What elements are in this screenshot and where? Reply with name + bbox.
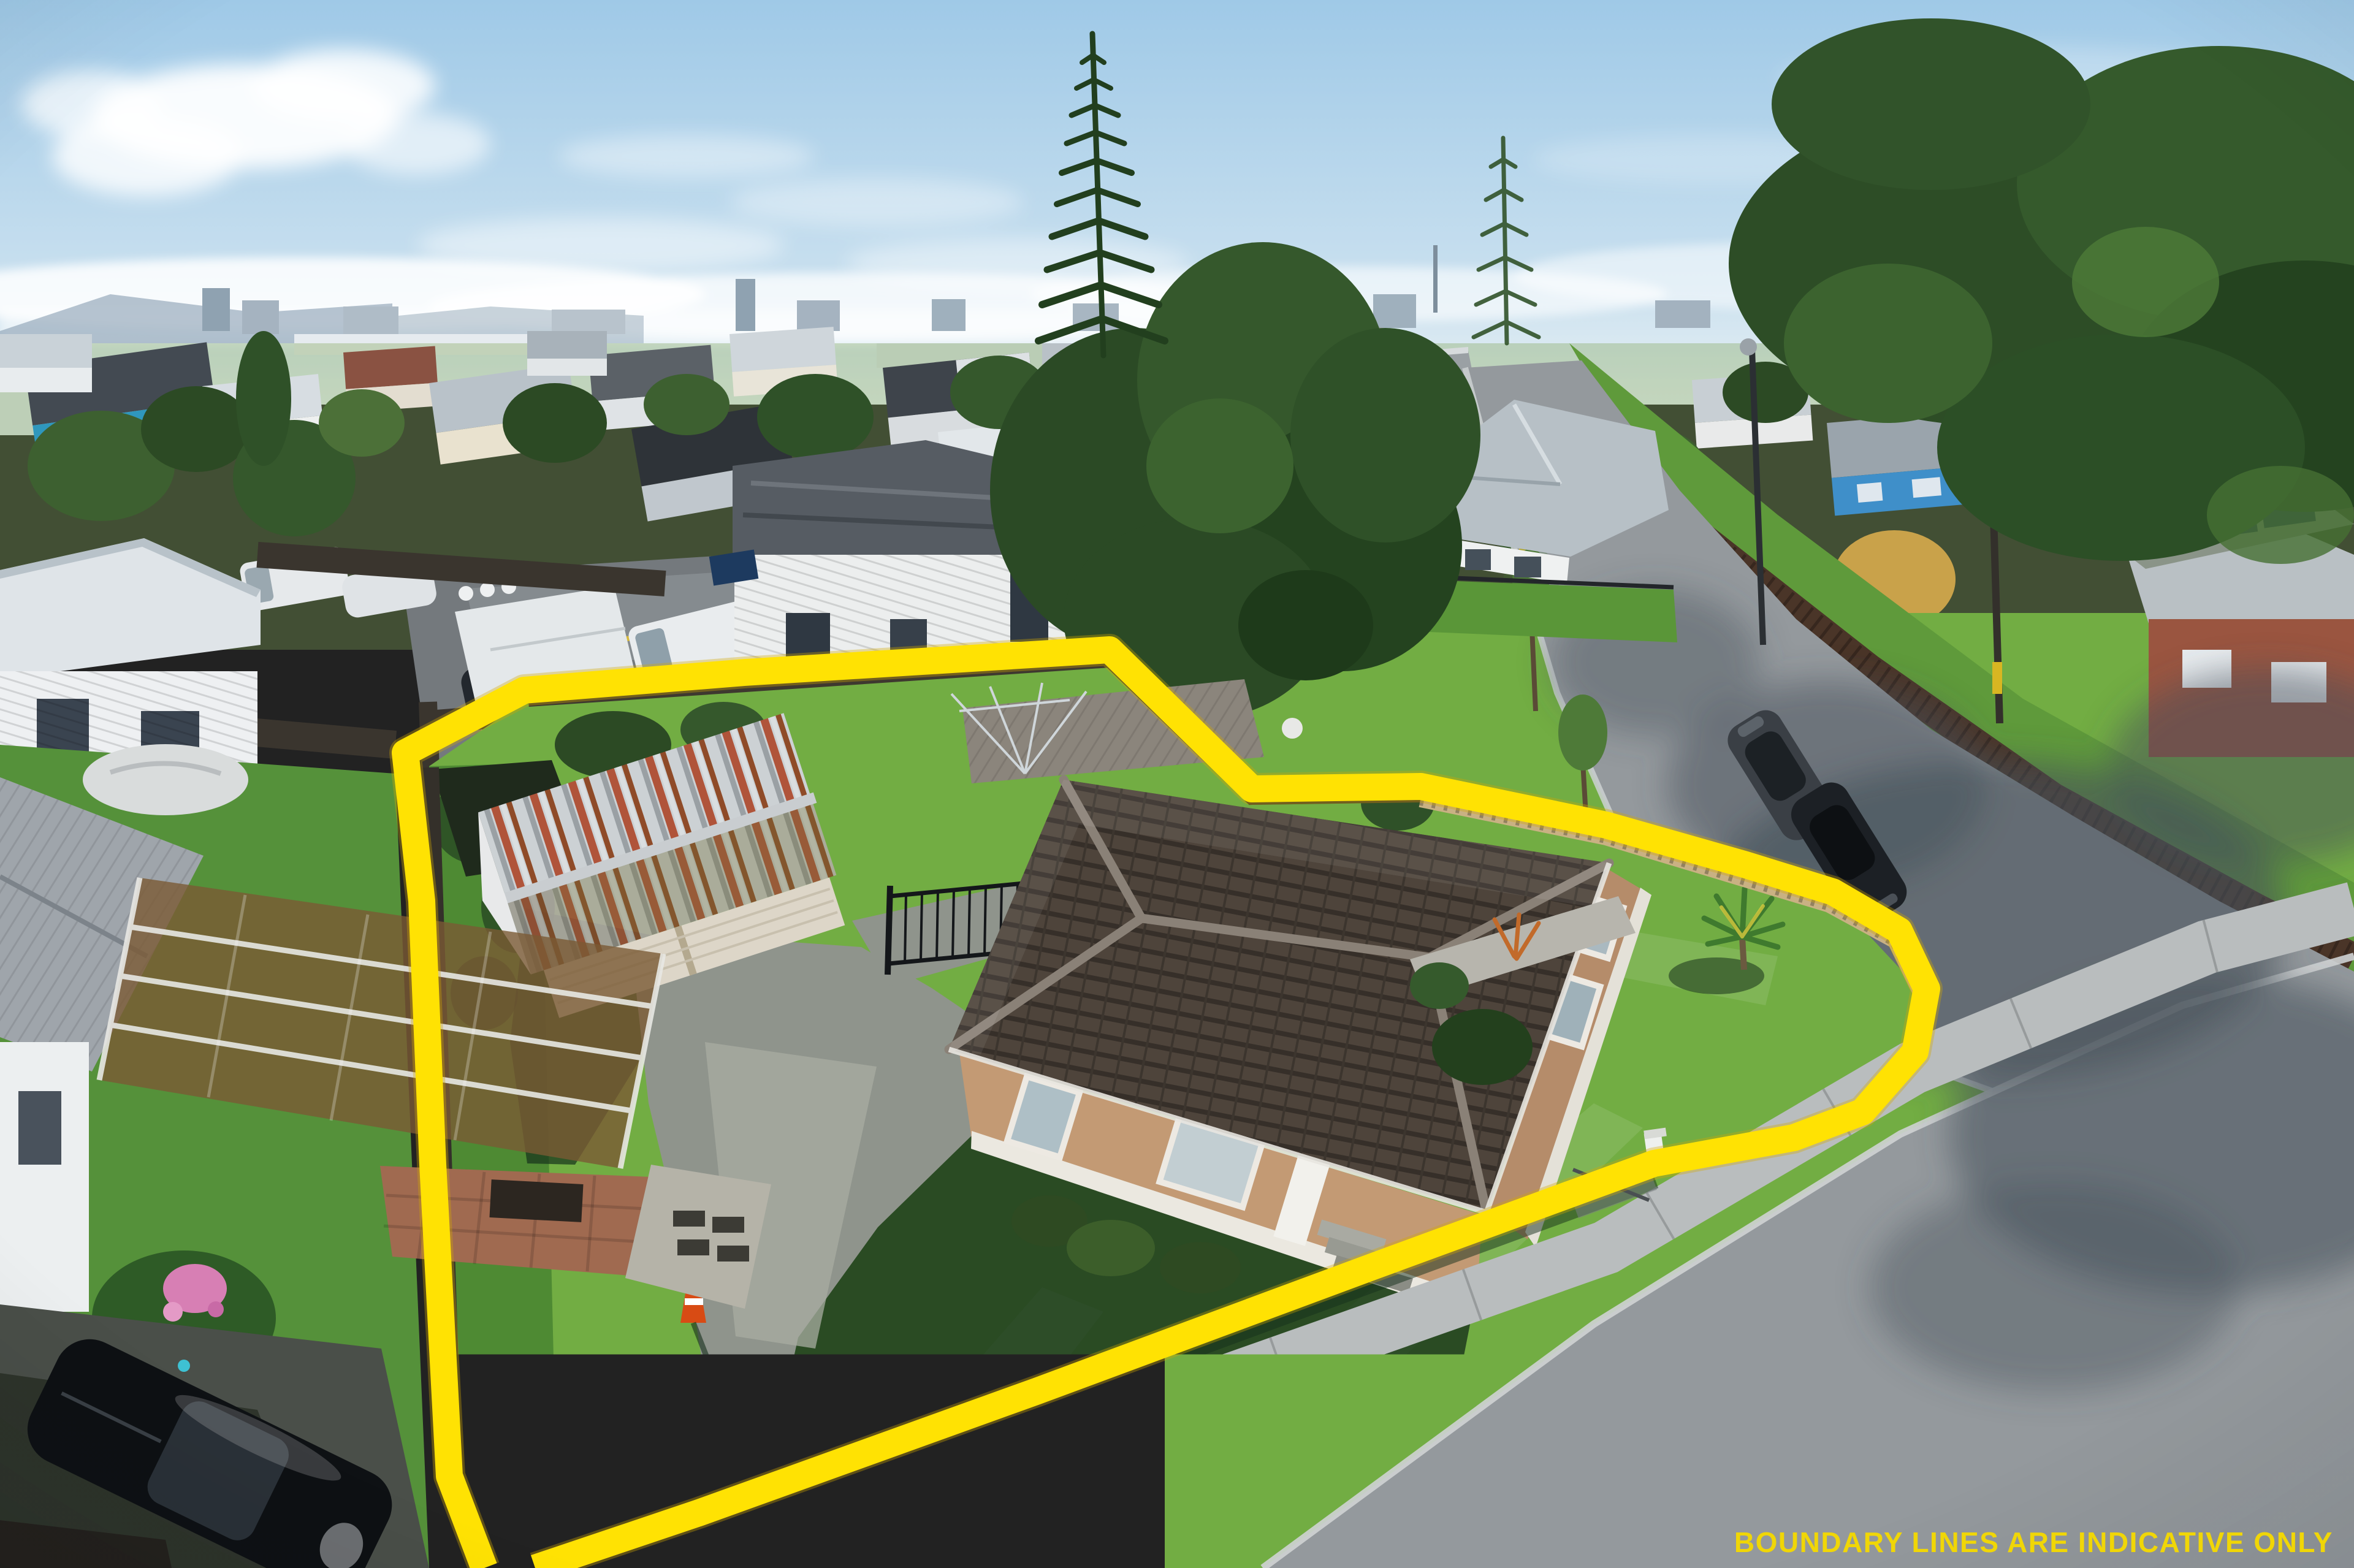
vignette [0, 0, 2354, 1568]
aerial-photo: BOUNDARY LINES ARE INDICATIVE ONLY [0, 0, 2354, 1568]
boundary-disclaimer-text: BOUNDARY LINES ARE INDICATIVE ONLY [1734, 1526, 2333, 1558]
